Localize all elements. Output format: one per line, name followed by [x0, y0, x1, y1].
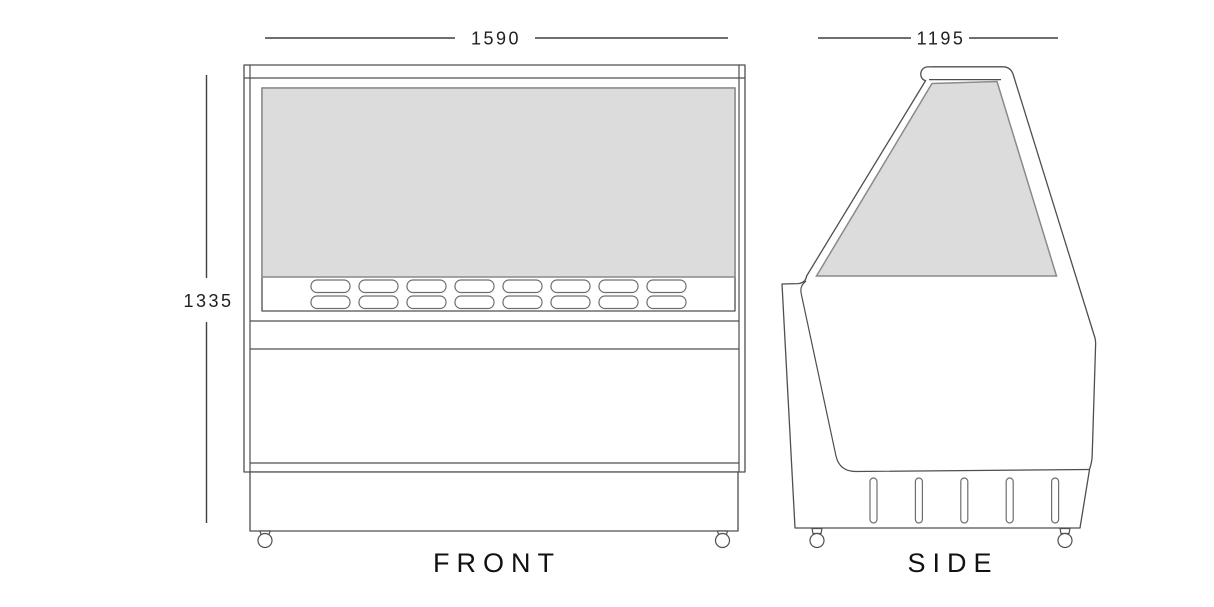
front-vent-slot	[599, 296, 638, 309]
front-vent-slot	[503, 296, 542, 309]
front-vent-slot	[503, 280, 542, 293]
front-vent-slot	[551, 296, 590, 309]
side-vent-slot	[1006, 478, 1013, 523]
front-vent-slot	[359, 280, 398, 293]
front-vent-slot	[407, 280, 446, 293]
front-vent-slot	[551, 280, 590, 293]
caster-wheel	[810, 534, 824, 548]
front-vent-slot	[311, 296, 350, 309]
front-vent-slot	[455, 296, 494, 309]
front-width-value: 1590	[471, 29, 521, 49]
front-vent-slot	[455, 280, 494, 293]
front-height-value: 1335	[183, 291, 233, 311]
front-plinth	[250, 472, 738, 531]
front-vent-slot	[407, 296, 446, 309]
front-vent-slot	[311, 280, 350, 293]
side-depth-value: 1195	[917, 29, 966, 49]
front-vent-slot	[359, 296, 398, 309]
side-vent-slot	[870, 478, 877, 523]
side-view-label: SIDE	[907, 548, 998, 578]
side-view	[782, 67, 1096, 548]
dimension-front-height: 1335	[183, 75, 233, 523]
technical-drawing-canvas: 1590 1195 1335 FRONT SIDE	[0, 0, 1214, 607]
caster-wheel	[1058, 534, 1072, 548]
side-vent-slot	[1052, 478, 1059, 523]
caster-wheel	[716, 534, 730, 548]
front-vent-slot	[599, 280, 638, 293]
dimension-front-width: 1590	[265, 29, 728, 49]
side-vent-slot	[961, 478, 968, 523]
front-view	[244, 65, 745, 548]
caster-wheel	[258, 534, 272, 548]
front-glass-panel	[262, 88, 735, 277]
side-vent-slot	[915, 478, 922, 523]
front-view-label: FRONT	[433, 548, 561, 578]
front-vent-slot	[647, 296, 686, 309]
caster-mount	[1060, 529, 1070, 534]
display-case-drawing: 1590 1195 1335 FRONT SIDE	[0, 0, 1214, 607]
caster-mount	[812, 529, 822, 534]
dimension-side-depth: 1195	[818, 29, 1058, 49]
front-vent-slot	[647, 280, 686, 293]
